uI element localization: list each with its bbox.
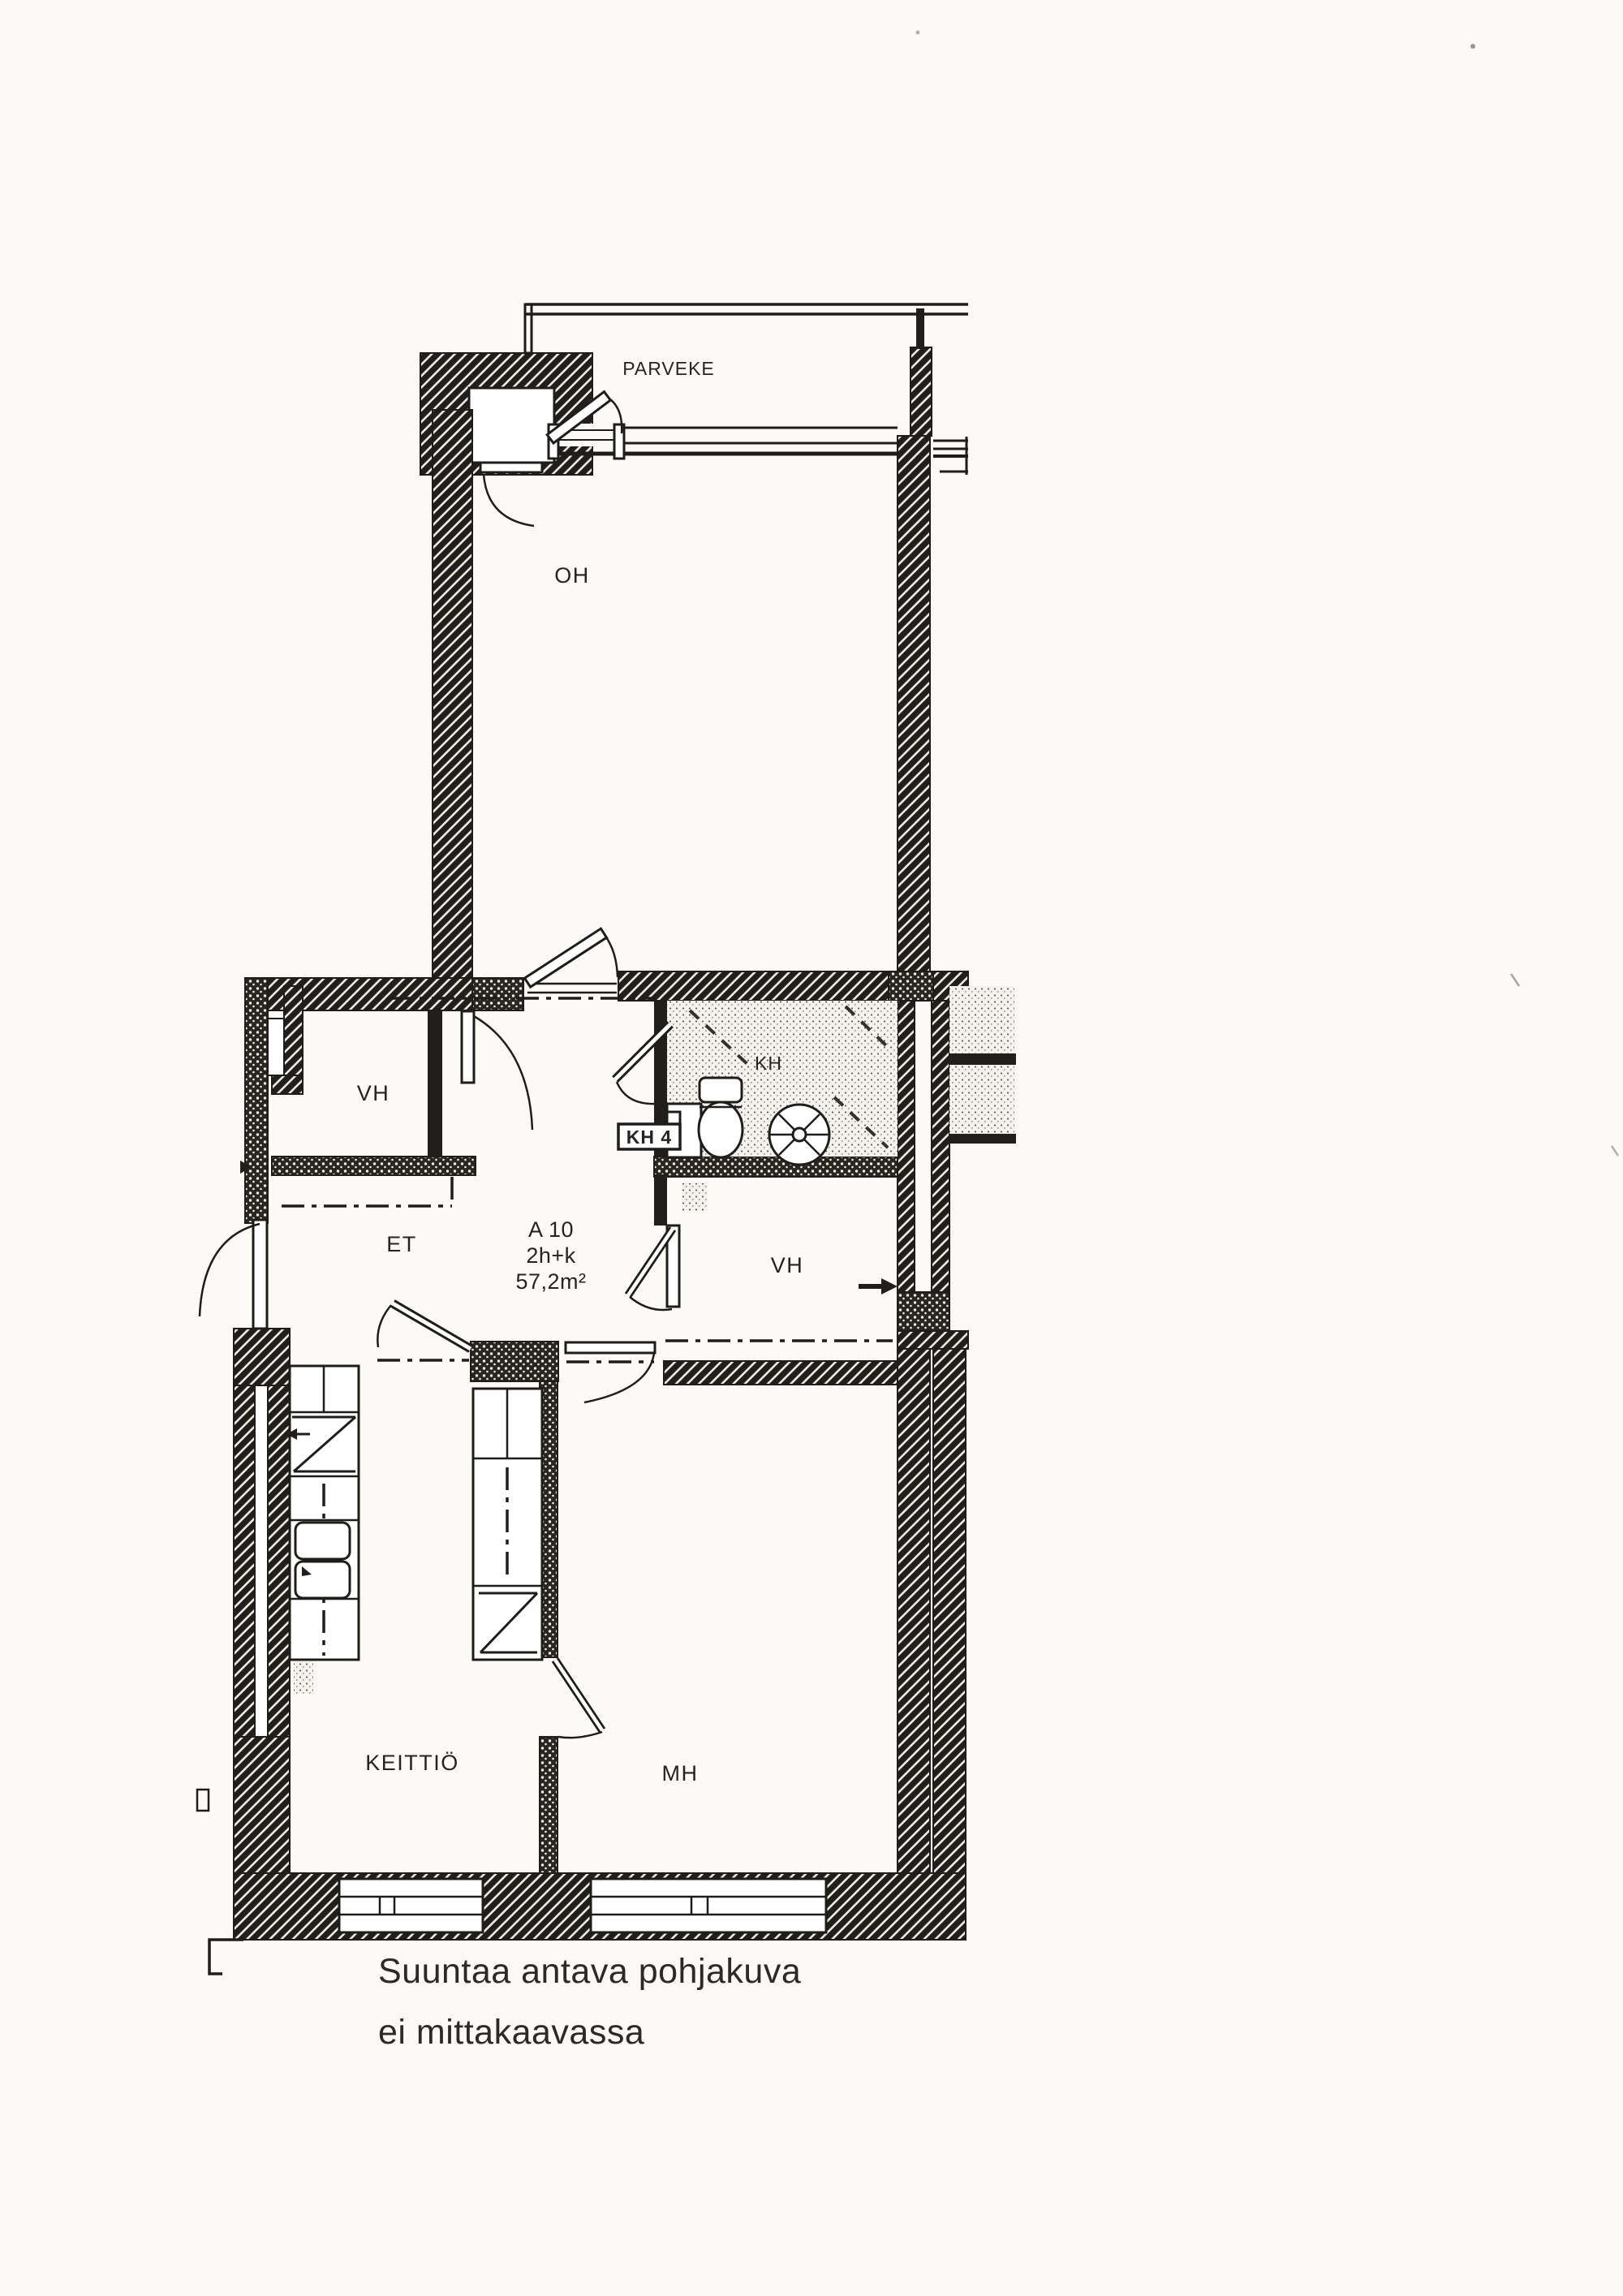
caption: Suuntaa antava pohjakuva ei mittakaavass… [378, 1952, 801, 2052]
entrance-door-arc [200, 1224, 260, 1316]
label-hallway: ET [386, 1232, 417, 1256]
niche-opening [469, 388, 554, 463]
wall-oh-left [433, 410, 472, 983]
toilet [699, 1078, 743, 1157]
oh-door-arc [605, 935, 618, 977]
neighbor-wall-2 [949, 1134, 1016, 1144]
apartment-id: A 10 [528, 1217, 574, 1242]
neighbor-wall-1 [949, 1053, 1016, 1065]
toilet-bowl [699, 1102, 743, 1157]
label-bedroom: MH [662, 1761, 699, 1786]
bathroom [667, 1001, 898, 1211]
duct-spot-vh [682, 1183, 708, 1211]
neighbor-floor-1 [949, 986, 1014, 1053]
floor-plan-drawing: PARVEKE OH VH ET KH VH KEITTIÖ MH A 10 2… [0, 0, 1623, 2296]
mh-door-leaf [566, 1342, 655, 1353]
kh-door-arc [617, 1082, 657, 1104]
wall-vh-right-left [654, 1174, 667, 1226]
wall-kh-top-patch [889, 971, 933, 1001]
wall-mh-right [898, 1349, 930, 1873]
wall-et-top [245, 978, 472, 1010]
scan-artifact [1511, 974, 1519, 986]
wall-vh-left-bottom [272, 1157, 476, 1175]
scan-artifact [1470, 44, 1475, 49]
scan-artifact [916, 31, 920, 35]
label-balcony: PARVEKE [622, 358, 715, 379]
duct-spot-kitchen [294, 1661, 313, 1694]
wall-outer-left-upper [245, 978, 268, 1223]
niche-door-arc [484, 474, 534, 526]
wall-inner-left-stub [272, 1075, 303, 1094]
wall-et-top-stub [472, 978, 523, 1010]
label-closet-left: VH [357, 1081, 390, 1105]
niche-door-leaf [480, 463, 542, 472]
vh-left-door-leaf [462, 1011, 474, 1083]
wall-kitchen-inner [268, 1385, 290, 1737]
wall-threshold-block [471, 1342, 558, 1381]
window-slit-vh [268, 1019, 284, 1075]
oh-door-leaf [525, 928, 607, 987]
stove-symbol [295, 1523, 350, 1598]
drain-center [793, 1128, 806, 1141]
label-kitchen: KEITTIÖ [365, 1751, 459, 1775]
apartment-info: A 10 2h+k 57,2m² [515, 1217, 586, 1294]
bedroom-window [591, 1879, 826, 1932]
entry-arrow-icon [859, 1278, 898, 1294]
caption-line2: ei mittakaavassa [378, 2013, 644, 2052]
vh-left-door-arc [474, 1016, 532, 1130]
apartment-area: 57,2m² [515, 1269, 586, 1294]
wall-kh-bottom [654, 1157, 898, 1177]
neighbor-floor-2 [949, 1065, 1014, 1134]
caption-line1: Suuntaa antava pohjakuva [378, 1952, 801, 1991]
wall-mh-top [664, 1361, 898, 1385]
vh-right-door-arc [630, 1297, 672, 1310]
scan-artifact [1612, 1146, 1618, 1156]
entrance-door-leaf [253, 1220, 267, 1329]
facade-tick [197, 1790, 209, 1811]
wall-outer-left-mid [234, 1329, 290, 1385]
wall-neighbor-right [933, 1349, 966, 1940]
kitchen-fittings [286, 1366, 542, 1694]
label-closet-right: VH [771, 1253, 804, 1277]
window-slit-kitchen [255, 1385, 268, 1737]
balcony-pillar [911, 347, 932, 436]
floor-plan-sheet: PARVEKE OH VH ET KH VH KEITTIÖ MH A 10 2… [0, 0, 1623, 2296]
kitchen-mh-door-leaf-inner [555, 1660, 602, 1730]
label-living-room: OH [554, 563, 590, 588]
wall-stairwell-b [932, 1001, 949, 1333]
wall-stairwell-block [898, 1292, 949, 1331]
wall-oh-right [898, 436, 930, 971]
apartment-layout: 2h+k [526, 1243, 575, 1268]
mh-door-arc [584, 1353, 654, 1402]
toilet-tank [700, 1078, 742, 1102]
bathroom-tag-text: KH 4 [626, 1126, 672, 1148]
kitchen-mh-door-arc [558, 1732, 602, 1738]
label-bathroom: KH [755, 1053, 782, 1074]
kitchen-window [339, 1879, 483, 1932]
wall-kitchen-mh-lower [540, 1737, 558, 1873]
wall-outer-left-lower [234, 1737, 290, 1873]
wall-end-hook [209, 1940, 243, 1974]
kitchen-door-arc [377, 1305, 391, 1347]
wall-vh-left-right [428, 1010, 442, 1158]
balcony-railing-end [525, 304, 532, 353]
wall-stairwell-a [898, 1001, 915, 1329]
floor-drain [769, 1105, 829, 1165]
bathroom-tag: KH 4 [618, 1124, 680, 1149]
kitchen-door-leaf-inner [393, 1303, 471, 1349]
wall-kitchen-outer [234, 1385, 255, 1737]
wall-stairwell-bottom [898, 1331, 968, 1349]
wall-kh-top [618, 971, 898, 1001]
